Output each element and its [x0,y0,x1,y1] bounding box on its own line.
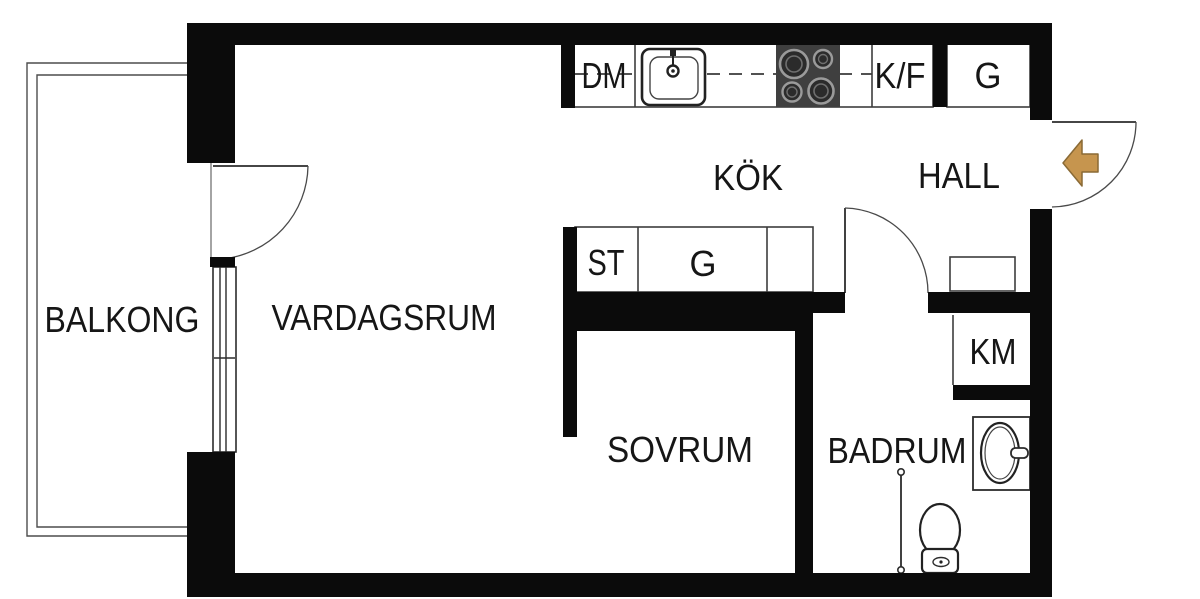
cleaning-closet-label: ST [588,242,625,283]
bedroom-north-wall-thick [563,313,813,331]
washing-machine-south-wall [953,385,1032,400]
washing-machine-label: KM [970,331,1017,372]
bedroom-west-wall [563,330,577,437]
closet-side-stub [563,227,577,292]
left-wall-upper [187,23,235,163]
bottom-wall [187,573,1052,597]
toilet-icon [920,504,960,573]
fridge-freezer-label: K/F [875,55,926,96]
right-wall-upper [1030,23,1052,120]
bedroom-north-wall [563,292,845,313]
kitchen-partition [561,43,575,108]
bathroom-west-wall [795,313,813,573]
kitchen-label: KÖK [713,157,783,198]
dishwasher-label: DM [582,55,627,96]
kitchen-sink-icon [642,49,705,105]
bedroom-label: SOVRUM [607,429,753,470]
hall-cabinet-box [950,257,1015,291]
stove-icon [776,45,840,107]
left-wall-lower [187,452,235,573]
living-room-label: VARDAGSRUM [272,297,497,338]
balcony-label: BALKONG [45,299,200,340]
wardrobe-label: G [690,243,717,284]
hall-bathroom-wall [928,292,1032,313]
bathroom-sink-icon [973,417,1030,490]
balcony-window [213,267,236,452]
floor-plan: BALKONG VARDAGSRUM KÖK HALL SOVRUM BADRU… [0,0,1200,599]
counter-end-stub [933,43,947,107]
bathroom-label: BADRUM [828,430,967,471]
hall-label: HALL [918,155,1000,196]
top-wall [187,23,1052,45]
left-wall-door-stub [210,257,235,267]
hall-wardrobe-label: G [975,55,1002,96]
right-wall-lower [1030,209,1052,597]
